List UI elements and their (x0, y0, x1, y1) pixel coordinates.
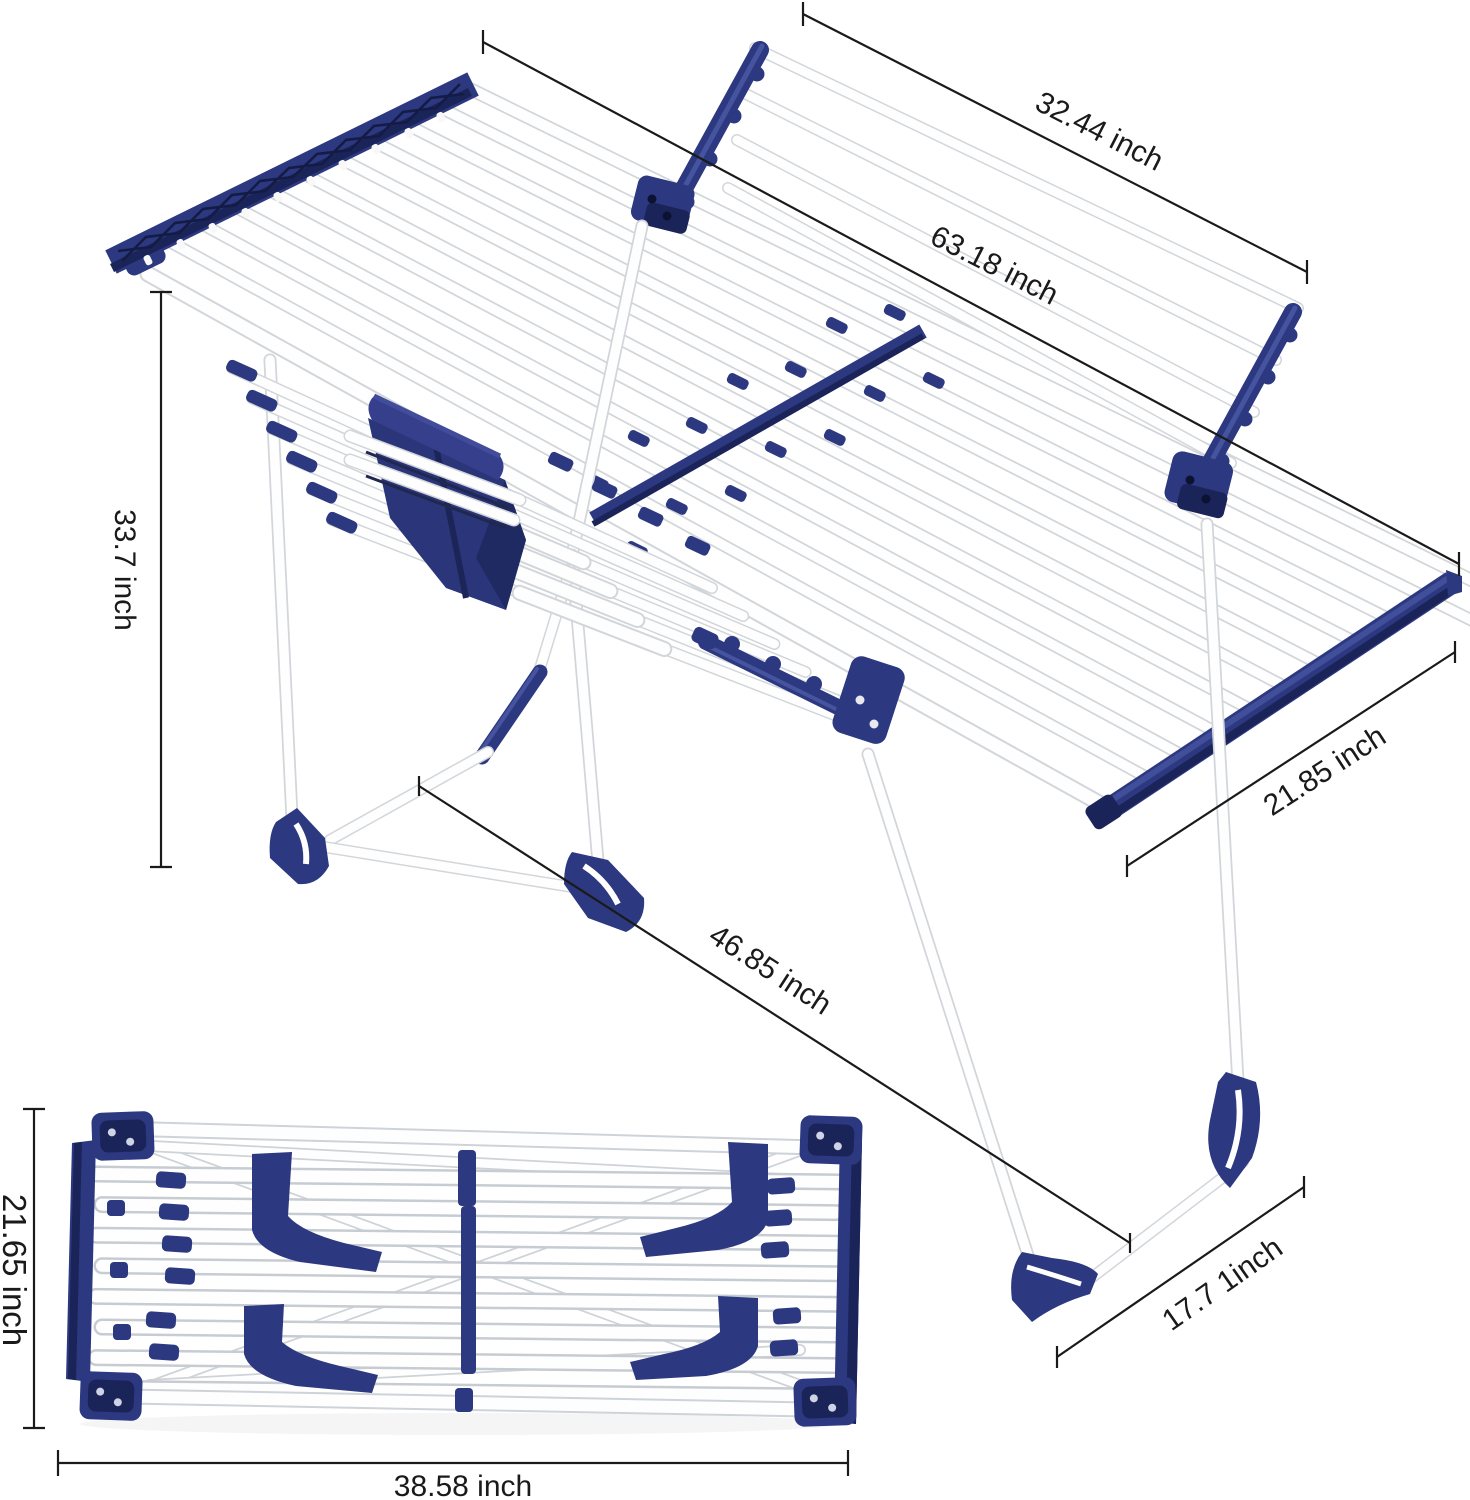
svg-text:17.7 1inch: 17.7 1inch (1156, 1231, 1288, 1337)
svg-text:33.7 inch: 33.7 inch (108, 509, 141, 631)
svg-text:32.44 inch: 32.44 inch (1030, 85, 1168, 177)
svg-text:63.18 inch: 63.18 inch (925, 219, 1063, 311)
svg-text:21.85 inch: 21.85 inch (1258, 719, 1392, 822)
svg-text:38.58 inch: 38.58 inch (394, 1470, 532, 1500)
svg-text:46.85 inch: 46.85 inch (703, 918, 837, 1021)
svg-text:21.65 inch: 21.65 inch (0, 1194, 33, 1346)
